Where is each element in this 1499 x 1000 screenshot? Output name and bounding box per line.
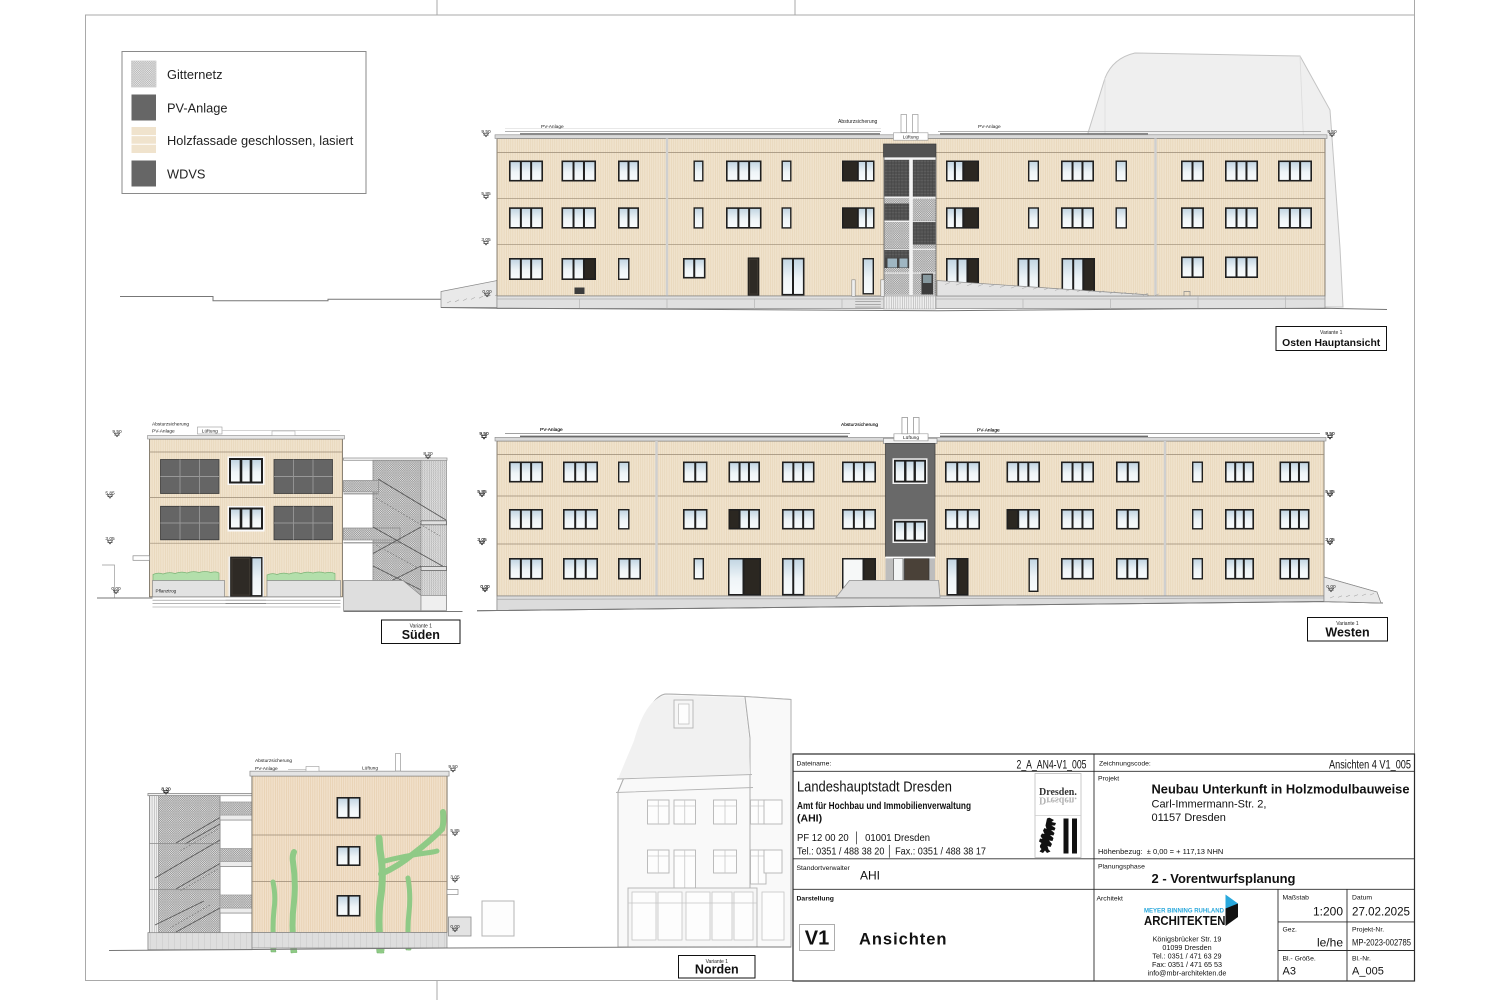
svg-text:Norden: Norden xyxy=(695,963,739,977)
svg-text:9,50: 9,50 xyxy=(448,764,458,770)
svg-text:PV-Anlage: PV-Anlage xyxy=(541,124,564,130)
svg-text:le/he: le/he xyxy=(1317,936,1343,950)
svg-text:8,20: 8,20 xyxy=(423,451,433,457)
svg-text:info@mbr-architekten.de: info@mbr-architekten.de xyxy=(1148,969,1227,978)
svg-text:5,85: 5,85 xyxy=(477,489,487,495)
svg-text:Osten Hauptansicht: Osten Hauptansicht xyxy=(1282,338,1381,349)
svg-text:Ansichten 4 V1_005: Ansichten 4 V1_005 xyxy=(1329,759,1411,771)
svg-text:PV-Anlage: PV-Anlage xyxy=(977,428,1000,434)
svg-text:3,05: 3,05 xyxy=(1325,537,1335,543)
svg-text:Holzfassade geschlossen, lasie: Holzfassade geschlossen, lasiert xyxy=(167,133,354,148)
svg-text:AHI: AHI xyxy=(860,869,880,883)
svg-text:Amt für Hochbau und Immobilien: Amt für Hochbau und Immobilienverwaltung xyxy=(797,800,971,812)
svg-text:Darstellung: Darstellung xyxy=(797,896,834,903)
svg-text:PV-Anlage: PV-Anlage xyxy=(540,427,563,433)
svg-text:0,00: 0,00 xyxy=(111,586,121,592)
svg-text:PV-Anlage: PV-Anlage xyxy=(152,429,175,435)
svg-text:5,85: 5,85 xyxy=(450,828,460,834)
svg-text:Ansichten: Ansichten xyxy=(859,931,947,949)
svg-text:5,85: 5,85 xyxy=(105,490,115,496)
svg-text:Tel.: 0351 / 488 38 20 │ Fax.:: Tel.: 0351 / 488 38 20 │ Fax.: 0351 / 48… xyxy=(797,845,986,859)
svg-text:A_005: A_005 xyxy=(1352,966,1384,978)
svg-text:Datum: Datum xyxy=(1352,895,1372,902)
svg-text:V1: V1 xyxy=(805,928,829,950)
svg-text:Höhenbezug: ± 0,00 = + 117,13: Höhenbezug: ± 0,00 = + 117,13 NHN xyxy=(1098,847,1223,856)
svg-text:1:200: 1:200 xyxy=(1313,905,1343,919)
svg-text:Zeichnungscode:: Zeichnungscode: xyxy=(1099,761,1151,768)
svg-text:Bl.-Nr.: Bl.-Nr. xyxy=(1352,956,1371,963)
svg-text:3,05: 3,05 xyxy=(450,874,460,880)
svg-text:Absturzsicherung: Absturzsicherung xyxy=(152,422,189,428)
svg-text:Pflanztrog: Pflanztrog xyxy=(156,589,177,594)
svg-text:3,05: 3,05 xyxy=(105,536,115,542)
svg-text:9,50: 9,50 xyxy=(1325,431,1335,437)
svg-text:0,00: 0,00 xyxy=(482,289,492,295)
svg-text:9,50: 9,50 xyxy=(1327,129,1337,135)
svg-text:Lüftung: Lüftung xyxy=(903,435,919,441)
svg-text:5,85: 5,85 xyxy=(481,191,491,197)
svg-text:Architekt: Architekt xyxy=(1097,896,1124,903)
svg-text:PV-Anlage: PV-Anlage xyxy=(167,101,227,116)
svg-text:Lüftung: Lüftung xyxy=(903,134,919,140)
svg-text:2_A_AN4-V1_005: 2_A_AN4-V1_005 xyxy=(1017,759,1087,771)
svg-text:Landeshauptstadt Dresden: Landeshauptstadt Dresden xyxy=(797,780,952,796)
svg-text:Projekt: Projekt xyxy=(1098,776,1119,783)
svg-text:Süden: Süden xyxy=(402,628,440,642)
svg-text:5,85: 5,85 xyxy=(1325,489,1335,495)
svg-text:ARCHITEKTEN: ARCHITEKTEN xyxy=(1144,913,1226,928)
svg-text:A3: A3 xyxy=(1283,966,1296,978)
svg-text:Absturzsicherung: Absturzsicherung xyxy=(841,422,878,428)
svg-text:9,50: 9,50 xyxy=(112,429,122,435)
svg-text:Neubau Unterkunft in Holzmodul: Neubau Unterkunft in Holzmodulbauweise xyxy=(1152,782,1410,797)
svg-text:Maßstab: Maßstab xyxy=(1283,895,1310,902)
svg-text:Westen: Westen xyxy=(1325,626,1369,640)
svg-text:3,05: 3,05 xyxy=(477,537,487,543)
svg-text:Variante 1: Variante 1 xyxy=(1320,330,1343,336)
svg-text:Gitternetz: Gitternetz xyxy=(167,67,222,82)
svg-text:Lüftung: Lüftung xyxy=(202,428,218,434)
svg-text:Projekt-Nr.: Projekt-Nr. xyxy=(1352,927,1384,934)
svg-text:0,00: 0,00 xyxy=(450,924,460,930)
svg-text:PF 12 00 20 │ 01001 Dresden: PF 12 00 20 │ 01001 Dresden xyxy=(797,831,930,845)
svg-text:WDVS: WDVS xyxy=(167,167,205,182)
svg-text:Absturzsicherung: Absturzsicherung xyxy=(838,119,878,125)
svg-text:0,00: 0,00 xyxy=(480,584,490,590)
svg-text:Lüftung: Lüftung xyxy=(362,766,378,772)
svg-text:Dresden.: Dresden. xyxy=(1039,795,1077,806)
svg-text:MP-2023-002785: MP-2023-002785 xyxy=(1352,938,1411,949)
svg-text:PV-Anlage: PV-Anlage xyxy=(255,766,278,772)
svg-text:2 - Vorentwurfsplanung: 2 - Vorentwurfsplanung xyxy=(1152,871,1296,886)
svg-text:Standortverwalter: Standortverwalter xyxy=(797,865,851,872)
svg-text:Planungsphase: Planungsphase xyxy=(1098,864,1145,871)
svg-text:01157 Dresden: 01157 Dresden xyxy=(1152,812,1226,824)
svg-text:Dateiname:: Dateiname: xyxy=(797,761,832,768)
svg-text:Carl-Immermann-Str. 2,: Carl-Immermann-Str. 2, xyxy=(1152,799,1267,811)
svg-text:Bl.- Größe.: Bl.- Größe. xyxy=(1283,956,1316,963)
svg-text:9,50: 9,50 xyxy=(481,129,491,135)
svg-text:9,50: 9,50 xyxy=(479,431,489,437)
svg-text:PV-Anlage: PV-Anlage xyxy=(978,124,1001,130)
svg-text:8,20: 8,20 xyxy=(161,786,171,792)
svg-text:Gez.: Gez. xyxy=(1283,927,1297,934)
svg-text:Absturzsicherung: Absturzsicherung xyxy=(255,758,292,764)
svg-text:3,05: 3,05 xyxy=(481,237,491,243)
svg-text:(AHI): (AHI) xyxy=(797,813,822,825)
svg-text:0,00: 0,00 xyxy=(1326,584,1336,590)
svg-text:27.02.2025: 27.02.2025 xyxy=(1352,905,1410,919)
